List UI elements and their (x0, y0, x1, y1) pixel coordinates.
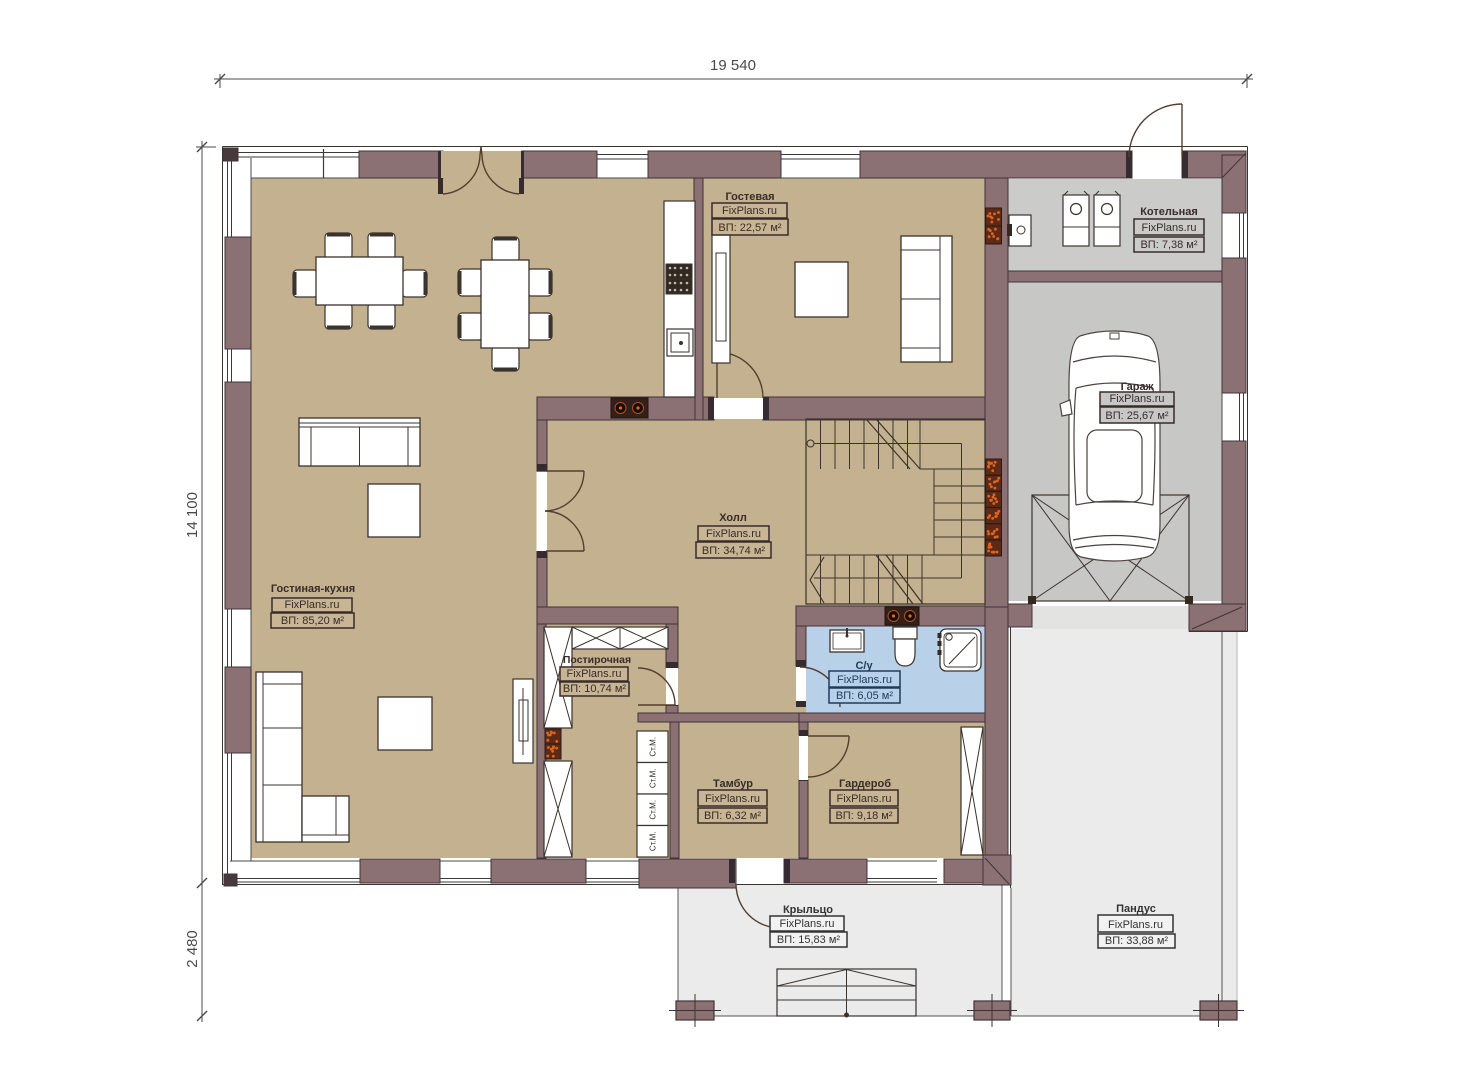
svg-text:Котельная: Котельная (1140, 206, 1198, 218)
svg-text:ВП: 33,88 м²: ВП: 33,88 м² (1105, 935, 1169, 947)
svg-text:Ст.М.: Ст.М. (649, 737, 658, 757)
svg-text:FixPlans.ru: FixPlans.ru (722, 205, 777, 217)
svg-text:FixPlans.ru: FixPlans.ru (705, 793, 760, 805)
svg-text:ВП: 34,74 м²: ВП: 34,74 м² (702, 545, 766, 557)
svg-text:С/у: С/у (855, 660, 873, 672)
svg-text:Гостиная-кухня: Гостиная-кухня (271, 583, 355, 595)
svg-text:ВП: 6,05 м²: ВП: 6,05 м² (836, 690, 893, 702)
svg-text:Постирочная: Постирочная (563, 654, 631, 666)
svg-text:ВП: 6,32 м²: ВП: 6,32 м² (704, 810, 761, 822)
svg-text:ВП: 10,74 м²: ВП: 10,74 м² (563, 683, 627, 695)
svg-text:FixPlans.ru: FixPlans.ru (837, 674, 892, 686)
svg-text:FixPlans.ru: FixPlans.ru (779, 918, 834, 930)
svg-text:Тамбур: Тамбур (713, 778, 753, 790)
svg-text:FixPlans.ru: FixPlans.ru (566, 668, 621, 680)
svg-text:19 540: 19 540 (710, 57, 756, 74)
svg-text:Гардероб: Гардероб (839, 778, 891, 790)
svg-text:2 480: 2 480 (184, 930, 201, 968)
svg-text:ВП: 85,20 м²: ВП: 85,20 м² (281, 615, 345, 627)
svg-text:ВП: 25,67 м²: ВП: 25,67 м² (1105, 410, 1169, 422)
svg-text:FixPlans.ru: FixPlans.ru (836, 793, 891, 805)
svg-text:ВП: 9,18 м²: ВП: 9,18 м² (835, 810, 892, 822)
svg-text:Гараж: Гараж (1121, 381, 1154, 393)
svg-text:Крыльцо: Крыльцо (783, 904, 833, 916)
svg-text:FixPlans.ru: FixPlans.ru (706, 528, 761, 540)
svg-text:ВП: 22,57 м²: ВП: 22,57 м² (718, 222, 782, 234)
svg-text:ВП: 7,38 м²: ВП: 7,38 м² (1140, 239, 1197, 251)
svg-text:Ст.М.: Ст.М. (649, 768, 658, 788)
svg-text:FixPlans.ru: FixPlans.ru (284, 599, 339, 611)
svg-text:ВП: 15,83 м²: ВП: 15,83 м² (777, 934, 841, 946)
svg-text:Гостевая: Гостевая (725, 191, 774, 203)
svg-text:Пандус: Пандус (1116, 903, 1156, 915)
svg-text:FixPlans.ru: FixPlans.ru (1109, 393, 1164, 405)
svg-text:Ст.М.: Ст.М. (649, 831, 658, 851)
svg-text:FixPlans.ru: FixPlans.ru (1141, 222, 1196, 234)
svg-text:FixPlans.ru: FixPlans.ru (1108, 919, 1163, 931)
svg-text:Ст.М.: Ст.М. (649, 800, 658, 820)
svg-text:14 100: 14 100 (184, 492, 201, 538)
svg-text:Холл: Холл (719, 512, 747, 524)
